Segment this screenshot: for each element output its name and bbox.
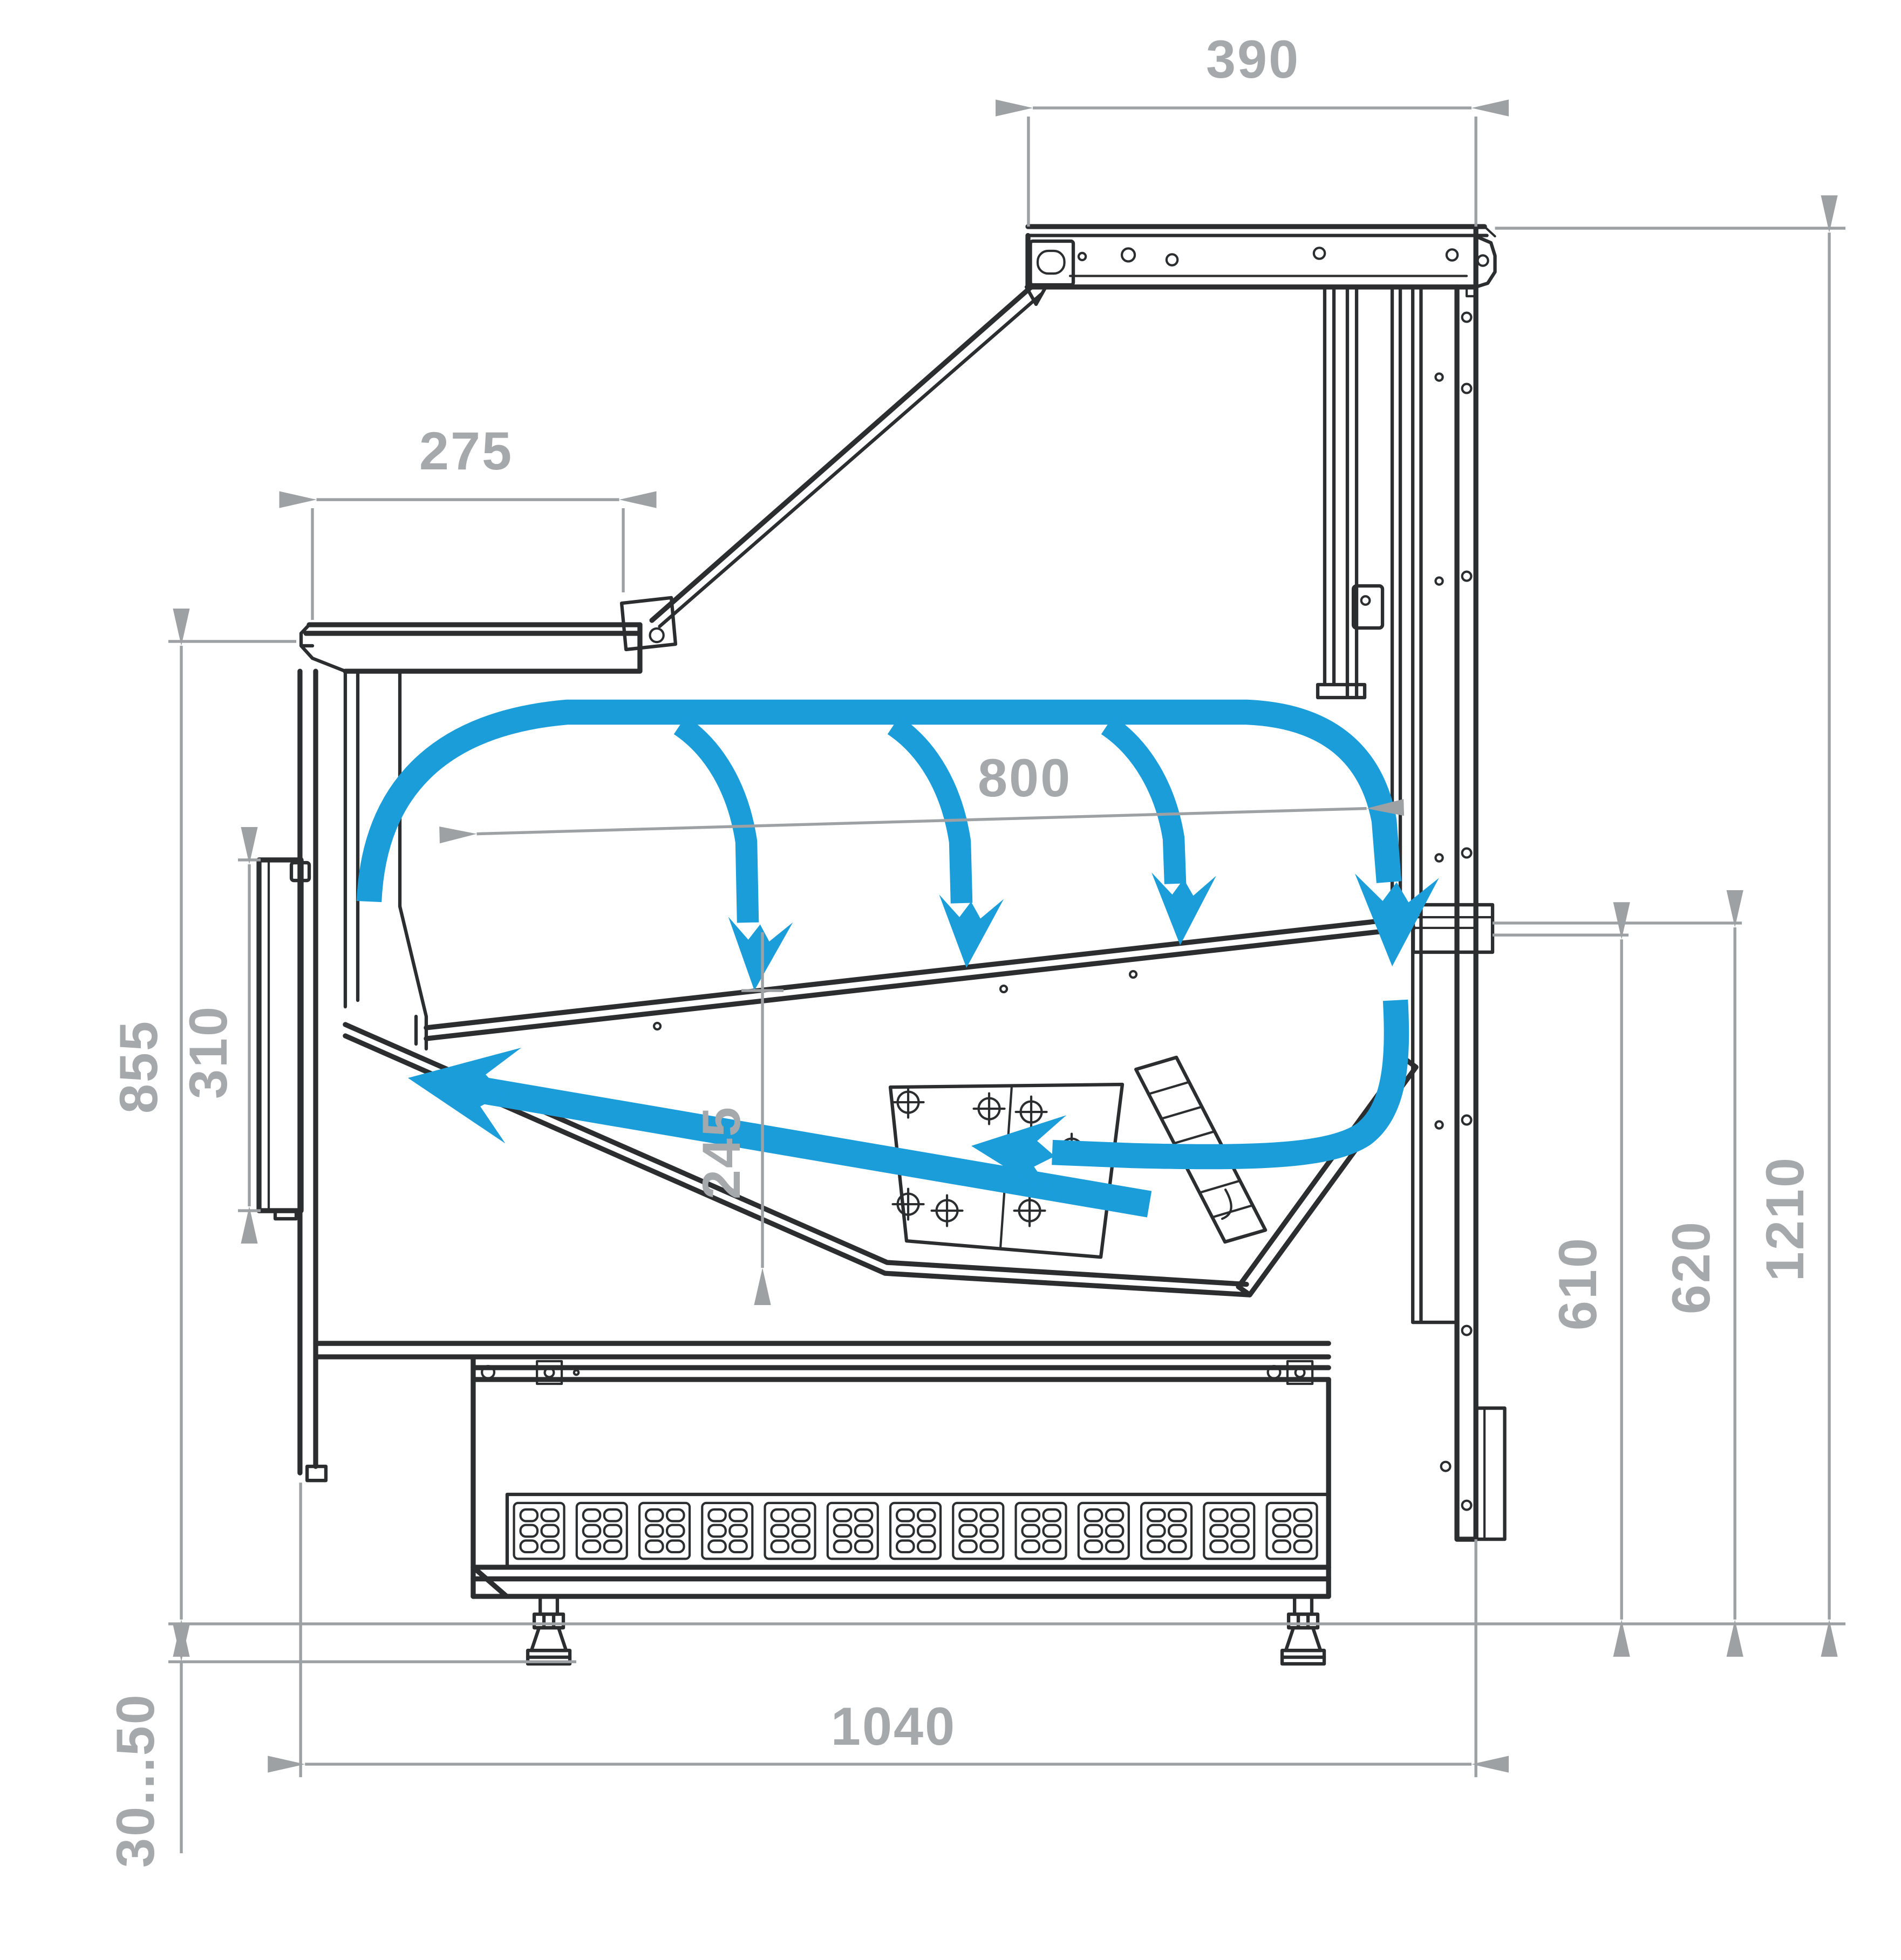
dim-800-label: 800	[978, 748, 1072, 808]
airflow-branch-2	[894, 725, 962, 903]
dimension-275: 275	[312, 421, 623, 620]
dimension-610: 610	[1493, 935, 1629, 1620]
dim-620-label: 620	[1661, 1220, 1721, 1314]
grille-louvers	[514, 1503, 1317, 1559]
deck-fasteners	[654, 971, 1136, 1029]
airflow-down-arrow-3-icon	[1148, 872, 1216, 947]
airflow-arrows	[369, 712, 1439, 1204]
dim-1210-label: 1210	[1755, 1156, 1815, 1281]
airflow-return-stream	[1052, 1000, 1396, 1157]
dim-855-label: 855	[108, 1020, 168, 1114]
dim-1040-label: 1040	[831, 1696, 956, 1756]
bottom-reference-lines	[168, 1624, 1845, 1662]
dimension-30-50: 30...50	[105, 1662, 181, 1868]
rear-wall-screws	[1435, 313, 1471, 1510]
dimension-390: 390	[1028, 29, 1476, 227]
body-bottom	[316, 1343, 1328, 1357]
dim-245-label: 245	[691, 1105, 751, 1199]
airflow-branch-3	[1107, 725, 1175, 884]
dim-30-50-label: 30...50	[105, 1693, 165, 1868]
ventilation-grille	[507, 1494, 1328, 1567]
adjustable-foot-rear	[1282, 1596, 1324, 1664]
dim-610-label: 610	[1548, 1237, 1607, 1330]
adjustable-foot-front	[528, 1596, 570, 1664]
refrigerated-counter-cross-section-drawing: 390 275 800 855 310 245	[0, 0, 1901, 1960]
dimension-245: 245	[691, 932, 783, 1268]
airflow-arc-over-display	[369, 712, 1389, 902]
canopy	[1028, 227, 1495, 296]
base-frame	[473, 1357, 1328, 1596]
airflow-down-arrow-2-icon	[934, 894, 1004, 970]
airflow-branch-1	[680, 725, 748, 923]
dim-390-label: 390	[1206, 29, 1300, 89]
dimension-310: 310	[178, 860, 261, 1211]
front-lower-panel	[259, 860, 309, 1219]
airflow-duct-supply-stream	[486, 1091, 1149, 1204]
rear-wall	[1413, 227, 1504, 1539]
counter-ledge	[301, 625, 640, 671]
airflow-down-arrow-1-icon	[722, 917, 793, 993]
dim-310-label: 310	[178, 1005, 238, 1099]
display-deck	[400, 905, 1493, 1049]
page: 390 275 800 855 310 245	[0, 0, 1901, 1960]
dim-275-label: 275	[419, 421, 513, 481]
front-glass	[652, 287, 1046, 626]
rear-post	[1318, 287, 1382, 698]
dimension-1040: 1040	[301, 1483, 1476, 1777]
dimension-620: 620	[1493, 923, 1742, 1620]
